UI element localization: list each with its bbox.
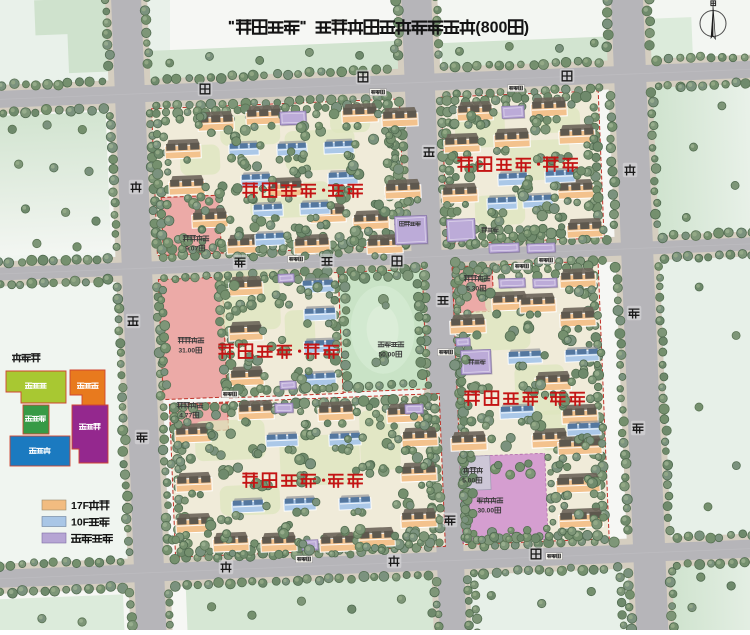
svg-text:17F: 17F (71, 500, 90, 512)
svg-text:4.77: 4.77 (179, 412, 192, 419)
svg-text:5.30: 5.30 (466, 285, 479, 292)
svg-text:9.07: 9.07 (185, 245, 198, 252)
svg-text:50.00: 50.00 (379, 351, 396, 358)
svg-text:30.00: 30.00 (478, 507, 495, 514)
svg-text:(800: (800 (475, 19, 507, 36)
svg-text:5.00: 5.00 (462, 477, 475, 484)
svg-text:31.00: 31.00 (179, 347, 196, 354)
svg-text:10F: 10F (71, 516, 90, 528)
svg-text:): ) (524, 19, 529, 36)
